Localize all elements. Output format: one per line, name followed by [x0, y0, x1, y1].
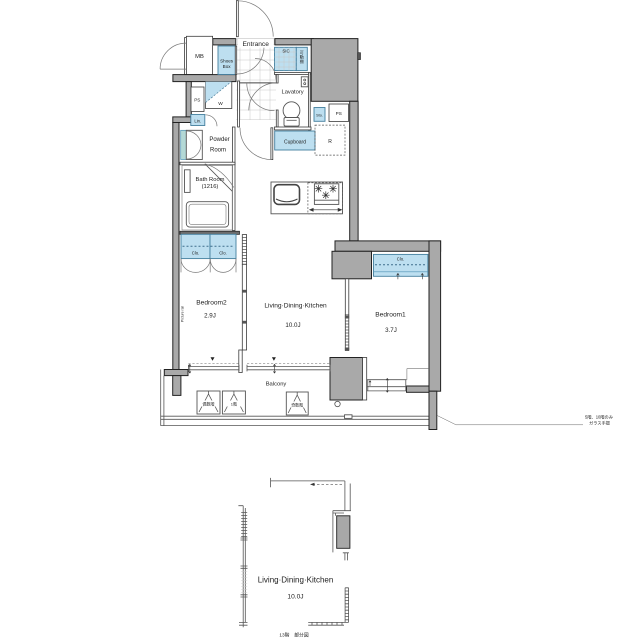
svg-text:Bedroom1: Bedroom1 [375, 312, 406, 319]
svg-text:Living·Dining·Kitchen: Living·Dining·Kitchen [264, 303, 327, 310]
svg-text:13階 部分図: 13階 部分図 [279, 632, 309, 639]
svg-text:Box: Box [223, 64, 232, 69]
svg-text:1階: 1階 [231, 400, 237, 406]
svg-text:Bedroom2: Bedroom2 [196, 300, 227, 307]
svg-text:PS: PS [336, 111, 342, 116]
svg-text:3.7J: 3.7J [385, 327, 397, 334]
svg-text:Room: Room [210, 148, 226, 154]
svg-text:Entrance: Entrance [242, 41, 269, 48]
svg-text:Clo.: Clo. [397, 257, 404, 262]
svg-text:Shoes: Shoes [220, 59, 234, 64]
svg-text:Living·Dining·Kitchen: Living·Dining·Kitchen [258, 576, 334, 585]
svg-text:Powder: Powder [209, 137, 229, 143]
svg-text:MB: MB [195, 54, 204, 60]
svg-text:2.9J: 2.9J [204, 313, 216, 320]
svg-text:棚: 棚 [300, 58, 304, 64]
svg-text:Sto.: Sto. [316, 114, 323, 118]
svg-text:10.0J: 10.0J [287, 593, 303, 600]
svg-text:SIC: SIC [282, 48, 289, 53]
svg-text:Picture rail: Picture rail [181, 306, 185, 322]
svg-text:Lin.: Lin. [194, 118, 201, 123]
svg-text:(1216): (1216) [202, 184, 219, 190]
svg-text:10.0J: 10.0J [285, 322, 300, 329]
svg-text:Clo.: Clo. [192, 250, 199, 255]
svg-text:Lavatory: Lavatory [281, 90, 303, 96]
svg-text:Balcony: Balcony [266, 382, 287, 388]
svg-text:Cupboard: Cupboard [284, 139, 306, 145]
svg-text:R: R [328, 139, 332, 145]
svg-text:偶数階: 偶数階 [203, 400, 215, 406]
svg-text:5階、10階のみ: 5階、10階のみ [585, 414, 613, 421]
svg-text:Clo.: Clo. [219, 250, 226, 255]
svg-text:奇数階: 奇数階 [291, 401, 303, 407]
svg-text:PS: PS [194, 97, 200, 102]
svg-text:ガラス手摺: ガラス手摺 [589, 420, 610, 427]
svg-text:W: W [218, 101, 223, 107]
svg-text:Bath Room: Bath Room [196, 177, 225, 183]
